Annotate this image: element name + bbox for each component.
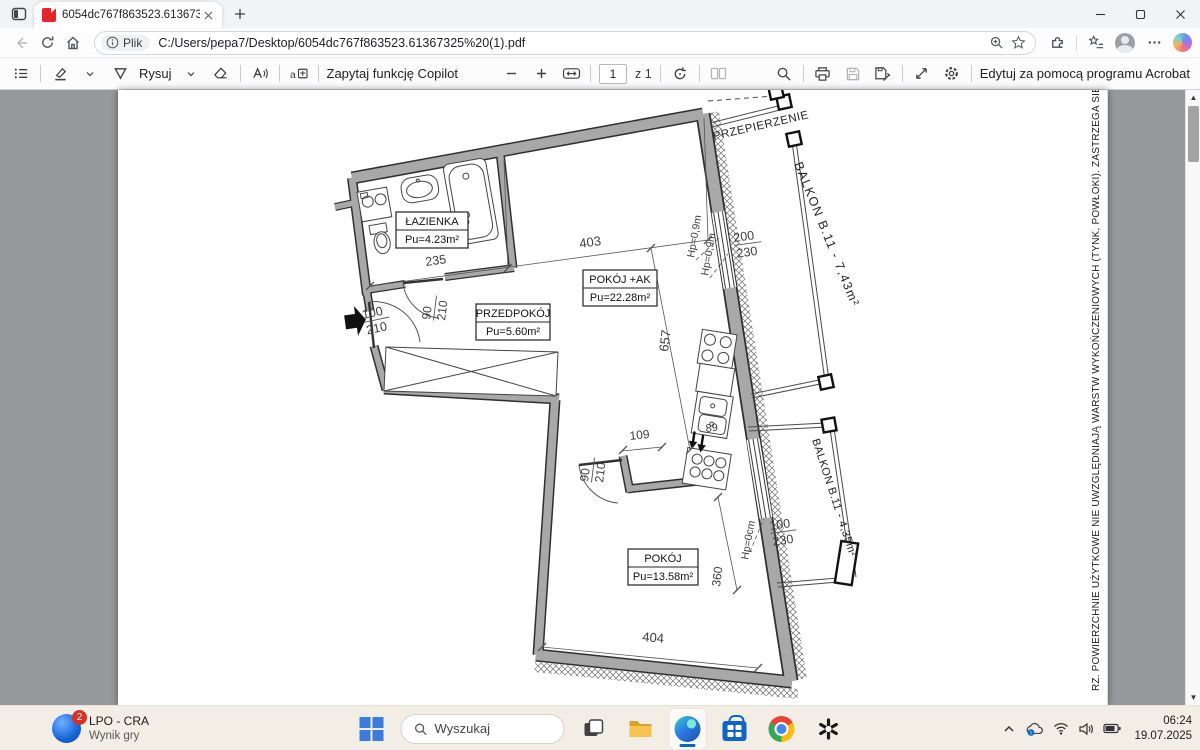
folder-icon bbox=[628, 718, 654, 740]
taskbar-search[interactable]: Wyszukaj bbox=[401, 714, 565, 744]
svg-text:a: a bbox=[290, 70, 296, 81]
svg-text:230: 230 bbox=[772, 532, 795, 549]
battery-icon[interactable] bbox=[1103, 723, 1121, 734]
pdf-file-icon bbox=[42, 8, 56, 22]
more-menu-icon[interactable] bbox=[1141, 30, 1167, 56]
tray-clock[interactable]: 06:24 19.07.2025 bbox=[1134, 714, 1192, 744]
copilot-icon[interactable] bbox=[1173, 33, 1192, 52]
home-icon[interactable] bbox=[60, 30, 86, 56]
divider bbox=[660, 65, 661, 82]
room-label-pokoj: POKÓJ Pu=13.58m² bbox=[628, 549, 698, 585]
svg-text:POKÓJ: POKÓJ bbox=[644, 552, 681, 565]
dim-235: 235 bbox=[424, 252, 447, 269]
dim-bath-door-90-210: 90 210 bbox=[419, 294, 451, 322]
task-view-button[interactable] bbox=[576, 709, 612, 749]
dim-entry-100-210: 100 210 bbox=[361, 303, 393, 338]
room-label-przedpokoj: PRZEDPOKÓJ Pu=5.60m² bbox=[476, 304, 551, 340]
pdf-page: 235 403 657 190 109 89 404 360 200 230 1… bbox=[118, 90, 1108, 705]
chevron-down-icon[interactable] bbox=[79, 62, 101, 86]
divider bbox=[803, 65, 804, 82]
file-chip-label: Plik bbox=[123, 36, 142, 50]
dim-room-door-90-210: 90 210 bbox=[577, 456, 609, 484]
file-scheme-chip[interactable]: Plik bbox=[101, 35, 150, 51]
settings-gear-icon[interactable] bbox=[941, 62, 963, 86]
zoom-in-icon[interactable] bbox=[530, 62, 552, 86]
svg-text:210: 210 bbox=[434, 299, 450, 321]
start-button[interactable] bbox=[354, 709, 390, 749]
chevron-down-icon[interactable] bbox=[180, 62, 202, 86]
close-button[interactable] bbox=[1160, 0, 1200, 28]
dim-89: 89 bbox=[705, 422, 718, 435]
dim-404: 404 bbox=[642, 629, 665, 646]
favorite-star-icon[interactable] bbox=[1007, 32, 1029, 54]
svg-text:90: 90 bbox=[577, 467, 593, 482]
two-page-view-icon[interactable] bbox=[708, 62, 730, 86]
dim-109: 109 bbox=[629, 427, 651, 443]
stove bbox=[697, 329, 737, 368]
divider bbox=[40, 65, 41, 82]
edge-running-indicator bbox=[680, 744, 696, 747]
zoom-page-icon[interactable] bbox=[985, 32, 1007, 54]
svg-text:i: i bbox=[1031, 731, 1032, 736]
svg-text:230: 230 bbox=[736, 244, 759, 261]
address-right-icons bbox=[1044, 30, 1192, 56]
divider bbox=[318, 65, 319, 82]
svg-text:200: 200 bbox=[732, 228, 755, 245]
side-note: RZ. POWIERZCHNIE UŻYTKOWE NIE UWZGLĘDNIA… bbox=[1089, 90, 1102, 691]
minimize-button[interactable] bbox=[1080, 0, 1120, 28]
svg-text:ŁAZIENKA: ŁAZIENKA bbox=[405, 216, 459, 228]
page-count-label: z 1 bbox=[635, 67, 652, 81]
translate-icon[interactable]: a bbox=[288, 62, 310, 86]
taskbar-widget[interactable]: 2 LPO - CRA Wynik gry bbox=[46, 706, 155, 750]
vertical-scrollbar[interactable]: ▲ ▼ bbox=[1185, 90, 1200, 705]
onedrive-icon[interactable]: i bbox=[1025, 721, 1044, 736]
wall-hatch bbox=[535, 112, 802, 694]
favorites-list-icon[interactable] bbox=[1083, 30, 1109, 56]
dim-hp-09-b: Hp=0,9m bbox=[699, 232, 718, 277]
tray-time: 06:24 bbox=[1134, 714, 1192, 729]
draw-pen-icon[interactable] bbox=[109, 62, 131, 86]
draw-label[interactable]: Rysuj bbox=[139, 66, 172, 81]
dim-403: 403 bbox=[578, 233, 602, 251]
dim-hp-0: Hp=0cm bbox=[739, 519, 758, 560]
svg-text:PRZEDPOKÓJ: PRZEDPOKÓJ bbox=[476, 307, 551, 320]
divider bbox=[279, 65, 280, 82]
chrome-icon bbox=[769, 716, 795, 742]
pdf-viewport[interactable]: 235 403 657 190 109 89 404 360 200 230 1… bbox=[0, 90, 1200, 705]
svg-text:Pu=5.60m²: Pu=5.60m² bbox=[486, 326, 540, 338]
divider bbox=[1076, 35, 1077, 51]
divider bbox=[590, 65, 591, 82]
widget-badge: 2 bbox=[72, 710, 87, 725]
toc-icon[interactable] bbox=[10, 62, 32, 86]
search-icon bbox=[414, 722, 428, 736]
tab-close-icon[interactable] bbox=[200, 7, 216, 23]
refresh-icon[interactable] bbox=[34, 30, 60, 56]
chatgpt-button[interactable] bbox=[811, 709, 847, 749]
widget-subtitle: Wynik gry bbox=[89, 729, 149, 743]
divider bbox=[699, 65, 700, 82]
dim-657: 657 bbox=[656, 329, 674, 352]
url-omnibox[interactable]: Plik C:/Users/pepa7/Desktop/6054dc767f86… bbox=[94, 31, 1036, 55]
store-button[interactable] bbox=[717, 709, 753, 749]
browser-titlebar: 6054dc767f863523.61367325 (1).pdf bbox=[0, 0, 1200, 28]
svg-text:Pu=13.58m²: Pu=13.58m² bbox=[633, 571, 694, 583]
address-bar: Plik C:/Users/pepa7/Desktop/6054dc767f86… bbox=[0, 28, 1200, 58]
back-icon[interactable] bbox=[8, 30, 34, 56]
tab-workspaces-icon[interactable] bbox=[6, 2, 32, 26]
scroll-up-icon[interactable]: ▲ bbox=[1186, 90, 1200, 105]
room-label-pokoj-ak: POKÓJ +AK Pu=22.28m² bbox=[583, 270, 657, 306]
highlighter-icon[interactable] bbox=[49, 62, 71, 86]
save-as-icon[interactable] bbox=[872, 62, 894, 86]
chevron-up-icon[interactable] bbox=[1002, 723, 1016, 735]
windows-logo-icon bbox=[360, 717, 384, 741]
svg-text:Pu=4.23m²: Pu=4.23m² bbox=[405, 234, 459, 246]
fit-width-icon[interactable] bbox=[560, 62, 582, 86]
sink bbox=[399, 173, 440, 204]
dim-hp-09-a: Hp=0,9m bbox=[685, 214, 704, 259]
system-tray: i 06:24 19.07.2025 bbox=[1002, 706, 1192, 750]
svg-text:210: 210 bbox=[592, 461, 608, 483]
washer bbox=[357, 187, 392, 222]
eraser-icon[interactable] bbox=[210, 62, 232, 86]
fullscreen-icon[interactable] bbox=[911, 62, 933, 86]
room-label-lazienka: ŁAZIENKA Pu=4.23m² bbox=[396, 212, 468, 248]
edge-button[interactable] bbox=[670, 709, 706, 749]
read-aloud-icon[interactable] bbox=[249, 62, 271, 86]
volume-icon[interactable] bbox=[1078, 722, 1094, 736]
page-number-input[interactable] bbox=[599, 64, 627, 84]
rotate-icon[interactable] bbox=[669, 62, 691, 86]
scrollbar-thumb[interactable] bbox=[1188, 106, 1199, 162]
dim-window-200-230: 200 230 bbox=[732, 227, 763, 260]
extensions-icon[interactable] bbox=[1044, 30, 1070, 56]
acrobat-edit-button[interactable]: Edytuj za pomocą programu Acrobat bbox=[980, 66, 1190, 81]
divider bbox=[240, 65, 241, 82]
svg-text:210: 210 bbox=[365, 319, 388, 337]
pdf-toolbar: Rysuj a Zapytaj funkcję Copilot z 1 Edyt… bbox=[0, 58, 1200, 90]
wifi-icon[interactable] bbox=[1053, 722, 1069, 735]
url-text[interactable]: C:/Users/pepa7/Desktop/6054dc767f863523.… bbox=[158, 36, 985, 50]
window-controls bbox=[1080, 0, 1200, 28]
zoom-out-icon[interactable] bbox=[500, 62, 522, 86]
task-view-icon bbox=[582, 717, 606, 741]
svg-text:POKÓJ +AK: POKÓJ +AK bbox=[589, 273, 651, 286]
balcony-1-label: BALKON B.11 - 7,43m² bbox=[791, 160, 862, 309]
chatgpt-icon bbox=[817, 717, 841, 741]
profile-avatar[interactable] bbox=[1115, 33, 1135, 53]
dim-360: 360 bbox=[709, 565, 725, 587]
divider bbox=[902, 65, 903, 82]
file-explorer-button[interactable] bbox=[623, 709, 659, 749]
scroll-down-icon[interactable]: ▼ bbox=[1186, 690, 1200, 705]
floor-plan: 235 403 657 190 109 89 404 360 200 230 1… bbox=[118, 90, 1108, 705]
tray-date: 19.07.2025 bbox=[1134, 729, 1192, 744]
svg-text:100: 100 bbox=[768, 516, 791, 533]
taskbar-center: Wyszukaj bbox=[354, 706, 847, 750]
wardrobe bbox=[384, 347, 558, 396]
widget-title: LPO - CRA bbox=[89, 714, 149, 729]
info-icon bbox=[106, 36, 119, 49]
print-icon[interactable] bbox=[812, 62, 834, 86]
screenshot-root: { "browser": { "tab_title": "6054dc767f8… bbox=[0, 0, 1200, 750]
windows-taskbar: 2 LPO - CRA Wynik gry Wyszukaj bbox=[0, 705, 1200, 750]
new-tab-button[interactable] bbox=[228, 2, 252, 26]
search-icon[interactable] bbox=[773, 62, 795, 86]
divider bbox=[971, 65, 972, 82]
svg-text:90: 90 bbox=[419, 305, 435, 320]
browser-tab[interactable]: 6054dc767f863523.61367325 (1).pdf bbox=[34, 2, 222, 28]
copilot-ask-button[interactable]: Zapytaj funkcję Copilot bbox=[327, 66, 459, 81]
search-placeholder: Wyszukaj bbox=[435, 721, 491, 736]
store-icon bbox=[723, 721, 747, 741]
svg-text:Pu=22.28m²: Pu=22.28m² bbox=[590, 292, 651, 304]
edge-icon bbox=[675, 716, 701, 742]
tab-title: 6054dc767f863523.61367325 (1).pdf bbox=[62, 9, 200, 21]
save-icon[interactable] bbox=[842, 62, 864, 86]
widget-sports-icon: 2 bbox=[52, 714, 81, 743]
chrome-button[interactable] bbox=[764, 709, 800, 749]
maximize-button[interactable] bbox=[1120, 0, 1160, 28]
